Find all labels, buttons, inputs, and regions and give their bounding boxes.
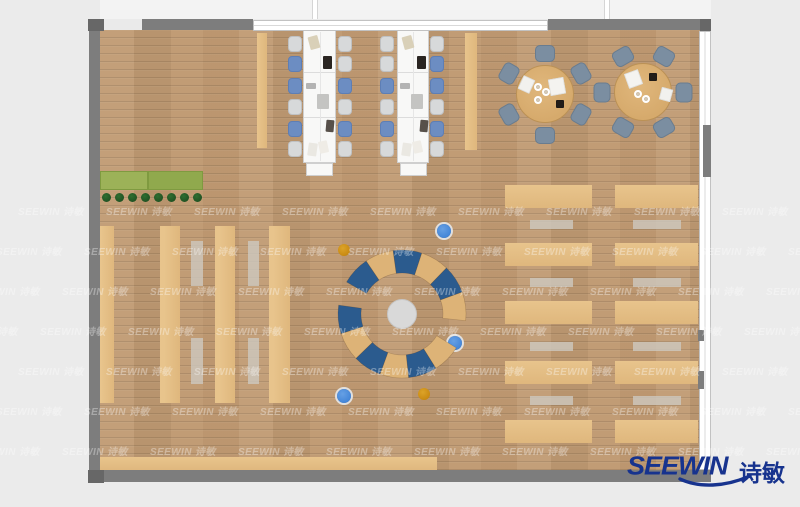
shelf-mat-4 — [248, 338, 259, 384]
bench-row-2-5 — [615, 420, 698, 443]
bench-row-2-1 — [615, 185, 698, 208]
shelf-row-1 — [98, 226, 114, 403]
bottom-long-bench — [100, 457, 437, 471]
desk-row-2-item-3 — [400, 83, 410, 89]
round-table-1-chair-4 — [535, 127, 555, 144]
round-table-1-item-3 — [556, 100, 564, 108]
wall-corner-top-left — [88, 19, 104, 31]
shelf-mat-3 — [248, 241, 259, 286]
ceiling-beam-line-left — [312, 0, 318, 19]
planter-plant-1 — [102, 193, 111, 202]
desk-row-2-chair-right-6 — [430, 141, 444, 157]
desk-row-1-chair-right-3 — [338, 78, 352, 94]
desk-row-2-chair-left-2 — [380, 56, 394, 72]
desk-row-1-chair-right-1 — [338, 36, 352, 52]
planter-plant-8 — [193, 193, 202, 202]
desk-row-1-end-table — [306, 163, 333, 176]
desk-row-2-chair-left-3 — [380, 78, 394, 94]
round-table-1-plate-2 — [542, 88, 550, 96]
top-window-band — [253, 20, 548, 31]
bench-mat-2-3 — [633, 342, 681, 351]
planter-plant-4 — [141, 193, 150, 202]
desk-row-2-chair-right-2 — [430, 56, 444, 72]
desk-row-1-chair-right-4 — [338, 99, 352, 115]
bench-row-2-2 — [615, 243, 698, 266]
desk-row-2-chair-left-5 — [380, 121, 394, 137]
round-table-2-chair-6 — [651, 115, 677, 140]
bench-row-1-2 — [505, 243, 592, 266]
desk-row-1-item-4 — [317, 94, 329, 109]
desk-row-1-item-2 — [323, 56, 332, 69]
round-table-1-plate-3 — [534, 96, 542, 104]
desk-row-2-chair-left-1 — [380, 36, 394, 52]
planter-plant-2 — [115, 193, 124, 202]
round-table-1-chair-1 — [535, 45, 555, 62]
planter-plant-6 — [167, 193, 176, 202]
bench-mat-2-4 — [633, 396, 681, 405]
door-opening-top — [104, 20, 142, 30]
bench-row-1-4 — [505, 361, 592, 384]
desk-row-1-chair-left-5 — [288, 121, 302, 137]
left-wall — [89, 30, 100, 482]
bench-mat-2-2 — [633, 278, 681, 287]
planter-plant-5 — [154, 193, 163, 202]
circular-bench-ring — [317, 229, 487, 399]
bench-row-1-1 — [505, 185, 592, 208]
right-wall-block-b — [698, 371, 704, 389]
desk-row-1-chair-right-2 — [338, 56, 352, 72]
desk-row-1-chair-right-5 — [338, 121, 352, 137]
desk-row-2-chair-right-5 — [430, 121, 444, 137]
desk-row-2-chair-left-6 — [380, 141, 394, 157]
desk-row-1-chair-left-6 — [288, 141, 302, 157]
shelf-row-3 — [215, 226, 235, 403]
bench-mat-1-2 — [530, 278, 573, 287]
shelf-mat-1 — [191, 241, 203, 286]
outside-top-band — [100, 0, 711, 19]
desk-row-2-chair-right-4 — [430, 99, 444, 115]
wall-corner-top-right — [700, 19, 711, 31]
bench-row-1-3 — [505, 301, 592, 324]
pillar-strip-left-of-desks — [257, 33, 267, 148]
round-table-1-item-2 — [548, 77, 567, 97]
bench-mat-1-4 — [530, 396, 573, 405]
top-wall-left — [142, 19, 253, 30]
right-window-wall — [699, 31, 711, 470]
round-table-2-plate-2 — [642, 95, 650, 103]
shelf-mat-2 — [191, 338, 203, 384]
round-table-2-item-3 — [659, 87, 674, 103]
right-wall-block-a — [698, 330, 704, 341]
desk-row-2-item-6 — [401, 142, 412, 156]
bench-mat-1-3 — [530, 342, 573, 351]
round-table-1-chair-6 — [568, 102, 593, 128]
bench-row-2-3 — [615, 301, 698, 324]
round-table-2-chair-4 — [594, 82, 611, 102]
desk-row-1-chair-left-2 — [288, 56, 302, 72]
shelf-row-2 — [160, 226, 180, 403]
desk-row-1-item-3 — [306, 83, 316, 89]
planter-bench-right — [148, 171, 203, 190]
desk-row-1-item-6 — [307, 142, 318, 156]
bench-row-2-4 — [615, 361, 698, 384]
round-table-1-plate-1 — [534, 83, 542, 91]
floorplan-canvas: SEEWIN 诗敏SEEWIN 诗敏SEEWIN 诗敏SEEWIN 诗敏SEEW… — [0, 0, 800, 507]
desk-row-2-item-5 — [419, 120, 428, 133]
round-table-2-plate-1 — [634, 90, 642, 98]
wall-corner-bottom-left — [88, 470, 104, 483]
desk-row-2-item-2 — [417, 56, 426, 69]
planter-plant-7 — [180, 193, 189, 202]
planter-plant-3 — [128, 193, 137, 202]
desk-row-2-chair-left-4 — [380, 99, 394, 115]
shelf-row-4 — [269, 226, 290, 403]
round-table-2-chair-1 — [676, 82, 693, 102]
desk-row-2-chair-right-1 — [430, 36, 444, 52]
desk-row-1-chair-left-1 — [288, 36, 302, 52]
ceiling-beam-line-right — [604, 0, 610, 19]
seewin-logo: SEEWIN 诗敏 — [627, 451, 797, 487]
desk-row-1-chair-left-4 — [288, 99, 302, 115]
pillar-strip-right-of-desks — [465, 33, 477, 150]
logo-text-zh: 诗敏 — [739, 454, 785, 488]
desk-row-2-item-4 — [411, 94, 423, 109]
desk-row-1-chair-left-3 — [288, 78, 302, 94]
desk-row-2-end-table — [400, 163, 427, 176]
top-wall-right — [548, 19, 711, 30]
bench-mat-1-1 — [530, 220, 573, 229]
bottom-wall — [100, 470, 711, 482]
planter-bench-left — [100, 171, 148, 190]
bench-row-1-5 — [505, 420, 592, 443]
desk-row-1-chair-right-6 — [338, 141, 352, 157]
round-table-2-item-2 — [649, 73, 657, 81]
desk-row-2-chair-right-3 — [430, 78, 444, 94]
desk-row-1-item-5 — [325, 120, 334, 133]
bench-mat-2-1 — [633, 220, 681, 229]
right-wall-mullion — [703, 125, 711, 177]
